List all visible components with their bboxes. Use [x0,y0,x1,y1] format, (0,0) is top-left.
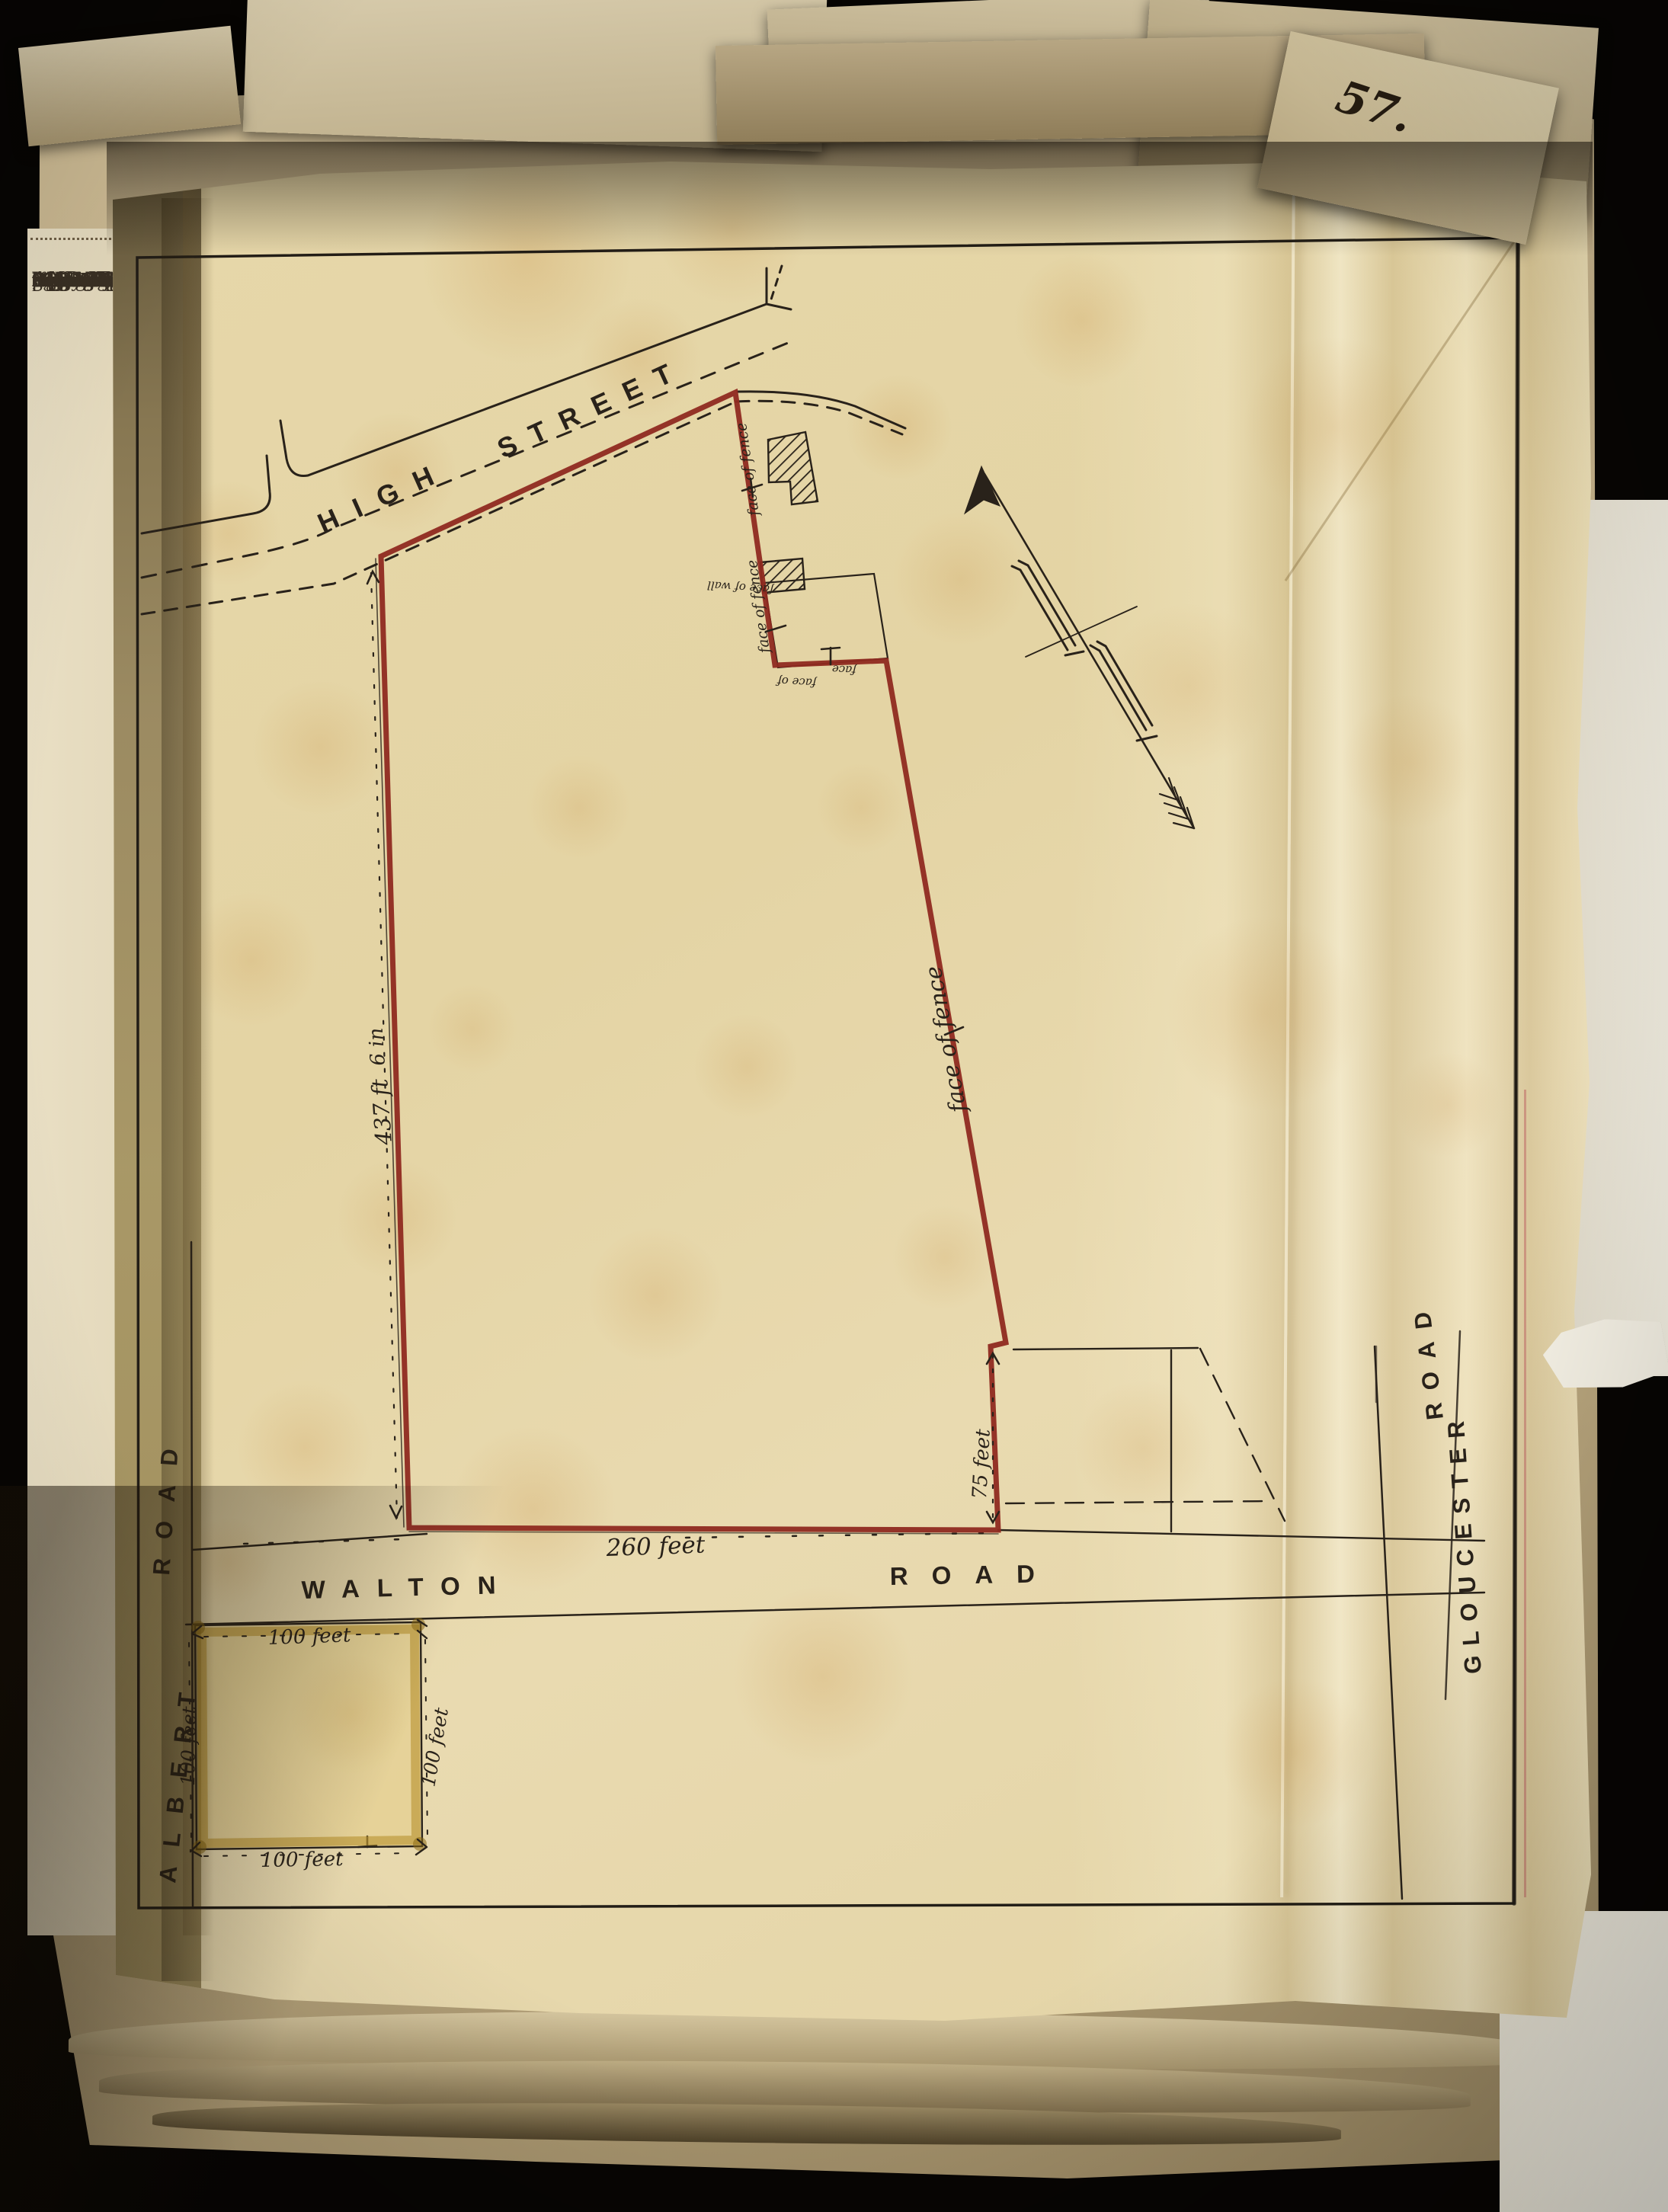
dim-west-437ft: 437 ft [367,1077,397,1146]
survey-ticks [358,479,963,1847]
gloucester-road-label-road: ROAD [1407,1298,1449,1421]
dim-south-260feet: 260 feet [605,1531,706,1562]
dim-square-bottom: 100 feet [261,1848,344,1872]
hatched-buildings [760,432,818,593]
dim-square-right: 100 feet [417,1705,453,1788]
north-arrow-ornament [1012,561,1157,741]
face-of-fence-label-main: face of fence [920,964,973,1116]
face-of-fence-label-upper1: face of fence [733,421,763,518]
yellow-square [189,1618,427,1856]
dim-square-top: 100 feet [267,1624,351,1650]
north-arrow [965,466,1194,828]
dim-square-left: 100 feet [177,1705,200,1786]
dim-west-6in: 6 in [365,1027,390,1067]
face-of-label-bottom: face of [775,674,817,690]
plot-outline-red [381,392,1006,1530]
walton-road-label-walton: WALTON [301,1570,514,1604]
albert-road-label-road: ROAD [148,1429,184,1576]
building-hatched-1 [768,432,818,504]
photographed-deed-page: urpose mayeriving titlent aforesaidm fro… [0,0,1668,2212]
dimension-lines [367,571,999,1522]
face-label-bottom: face [831,662,857,677]
albert-road-line [191,1242,193,1906]
plan-drawing: HIGH STREET WALTON ROAD ALBERT ROAD GLOU… [0,0,1668,2212]
east-parcel-lines [998,1348,1484,1541]
north-arrow-crossline [1026,607,1137,657]
dim-east-75feet: 75 feet [968,1428,995,1500]
walton-road-label-road: ROAD [889,1559,1058,1590]
page-number: 57. [1330,70,1420,143]
